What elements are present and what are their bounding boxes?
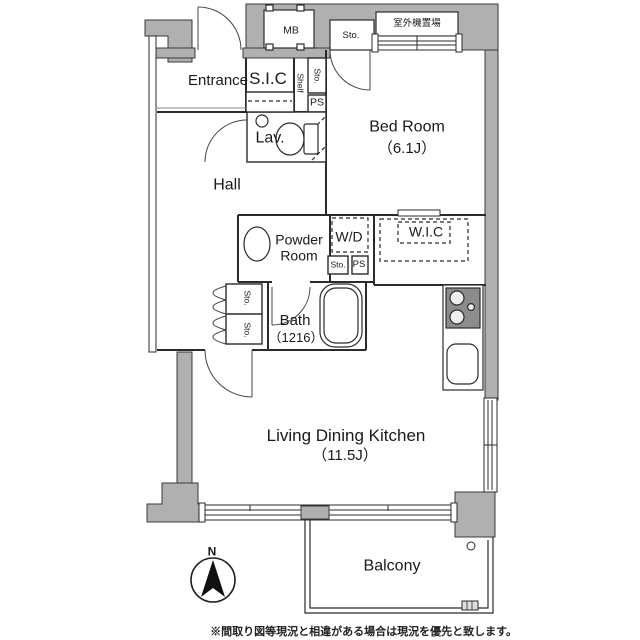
label-outdoor-unit: 室外機置場 [393,19,441,29]
label-entrance: Entrance [188,73,248,89]
label-closet-sto-2: Sto. [243,322,252,337]
label-ldk-size: （11.5J） [312,448,378,464]
label-ps-small: PS [353,260,366,270]
label-hall: Hall [213,178,241,195]
sic-cabinet [246,92,294,112]
kitchen-sink-icon [447,344,478,384]
label-powder-2: Room [280,249,317,264]
bathtub-icon [320,284,362,347]
label-ldk: Living Dining Kitchen [267,427,426,445]
label-bedroom: Bed Room [369,120,445,137]
label-ps-top: PS [310,97,324,108]
label-sto-small: Sto. [330,261,345,270]
washbasin-icon [244,227,270,261]
left-thin-wall [149,36,156,352]
label-powder-1: Powder [275,233,322,248]
label-wd: W/D [335,230,362,245]
compass-icon [191,558,235,602]
label-closet-sto-1: Sto. [243,290,252,305]
floor-plan-canvas: MB Sto. 室外機置場 Entrance S.I.C Shelf Sto. … [0,0,640,640]
label-bath: Bath [280,313,311,329]
label-sto-top: Sto. [343,31,360,41]
window-divider [301,506,329,519]
label-balcony: Balcony [364,559,421,576]
label-sic: S.I.C [249,70,287,88]
label-mb: MB [283,25,299,36]
label-lav: Lav. [255,131,284,148]
lav-basin-icon [256,115,268,127]
kitchen-counter [443,285,483,390]
label-compass-north: N [208,546,217,559]
label-bath-size: （1216） [269,331,324,345]
label-shelf: Shelf [296,73,305,92]
label-sto-side: Sto. [313,68,322,83]
bedroom-top-window [372,34,462,52]
footnote-disclaimer: ※間取り図等現況と相違がある場合は現況を優先と致します。 [210,623,517,639]
balcony-drain [462,601,478,610]
label-wic: W.I.C [409,225,443,240]
label-bedroom-size: （6.1J） [378,141,436,157]
